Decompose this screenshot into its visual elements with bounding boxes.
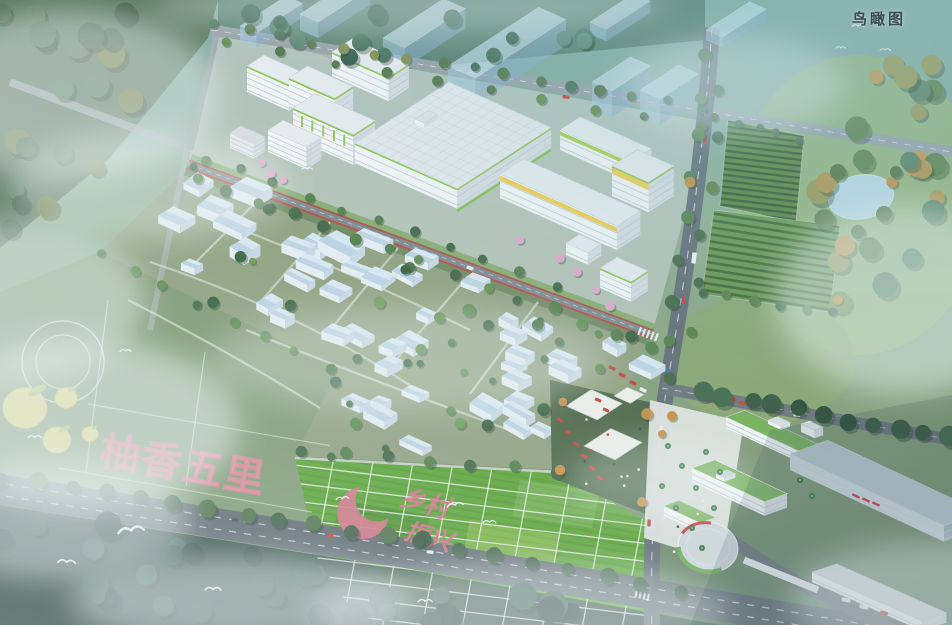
haze-overlay bbox=[0, 0, 952, 625]
scene-svg: 柚香五里 乡村 振兴 bbox=[0, 0, 952, 625]
view-type-label: 鸟瞰图 bbox=[852, 8, 906, 29]
atmosphere-layer bbox=[0, 0, 952, 625]
aerial-rendering: 柚香五里 乡村 振兴 鸟瞰图 bbox=[0, 0, 952, 625]
